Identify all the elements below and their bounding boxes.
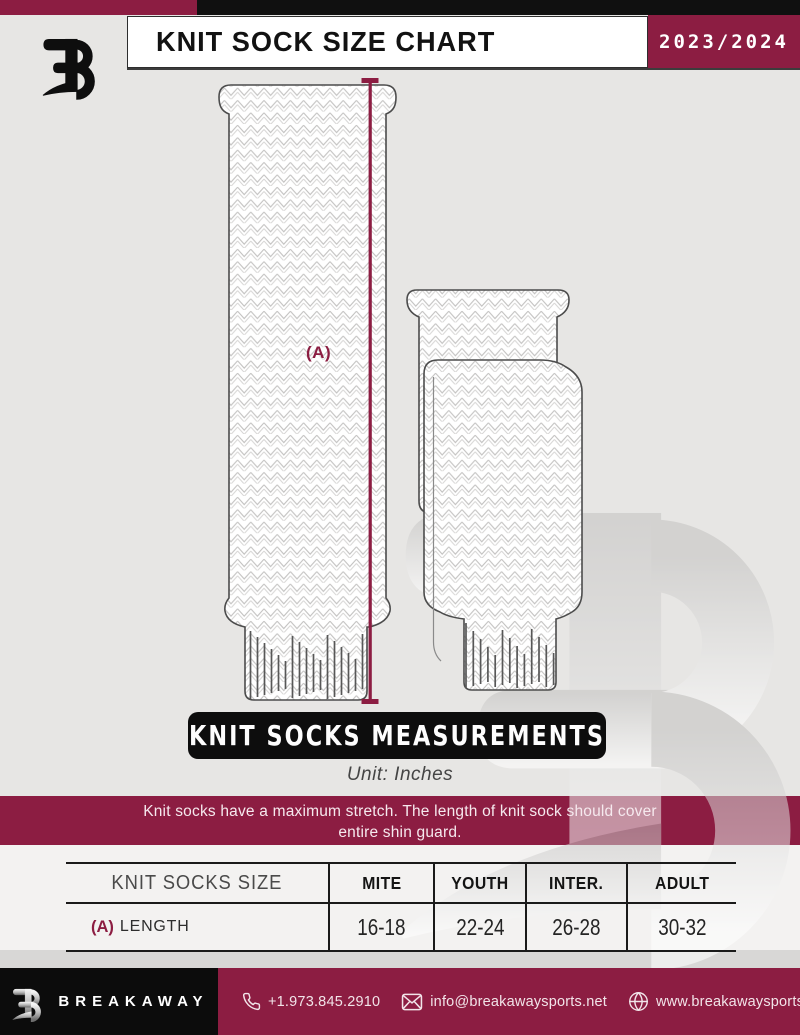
- footer-phone-number: +1.973.845.2910: [268, 994, 380, 1010]
- envelope-icon: [401, 993, 423, 1011]
- footer-breakaway-logo-icon: [9, 982, 47, 1022]
- stretch-notice-line2: entire shin guard.: [0, 822, 800, 843]
- page-title-box: KNIT SOCK SIZE CHART: [127, 16, 648, 68]
- bottom-gray-strip: [0, 950, 800, 968]
- footer-phone[interactable]: +1.973.845.2910: [242, 992, 380, 1011]
- footer-contacts: +1.973.845.2910 info@breakawaysports.net…: [218, 968, 800, 1035]
- header-underline: [127, 68, 800, 70]
- measurements-banner-text: KNIT SOCKS MEASUREMENTS: [189, 719, 605, 752]
- footer-brand-block: BREAKAWAY: [0, 968, 218, 1035]
- breakaway-logo-icon: [36, 26, 106, 100]
- footer-brand-name: BREAKAWAY: [58, 993, 208, 1010]
- table-header-adult: ADULT: [626, 864, 736, 904]
- footer: BREAKAWAY +1.973.845.2910 info@breakaway…: [0, 968, 800, 1035]
- season-label: 2023/2024: [659, 31, 789, 53]
- footer-website[interactable]: www.breakawaysports.net: [628, 991, 800, 1012]
- size-table: KNIT SOCKS SIZE MITE YOUTH INTER. ADULT …: [66, 862, 736, 952]
- large-sock: [219, 85, 396, 700]
- footer-email[interactable]: info@breakawaysports.net: [401, 993, 607, 1011]
- table-cell-youth: 22-24: [433, 904, 525, 950]
- table-header-mite: MITE: [328, 864, 433, 904]
- table-header-size: KNIT SOCKS SIZE: [66, 864, 328, 904]
- measurements-banner: KNIT SOCKS MEASUREMENTS: [188, 712, 606, 759]
- table-cell-mite: 16-18: [328, 904, 433, 950]
- season-box: 2023/2024: [648, 15, 800, 68]
- phone-icon: [242, 992, 261, 1011]
- footer-website-url: www.breakawaysports.net: [656, 994, 800, 1010]
- back-small-sock: [407, 290, 569, 513]
- measurement-line-a: [362, 78, 379, 704]
- table-cell-inter: 26-28: [525, 904, 626, 950]
- unit-label: Unit: Inches: [0, 764, 800, 786]
- table-row-label: (A) LENGTH: [66, 904, 328, 950]
- globe-icon: [628, 991, 649, 1012]
- table-cell-adult: 30-32: [626, 904, 736, 950]
- front-small-sock: [424, 360, 582, 690]
- footer-email-address: info@breakawaysports.net: [430, 994, 607, 1010]
- table-header-inter: INTER.: [525, 864, 626, 904]
- top-strip-maroon: [0, 0, 197, 15]
- measurement-label-a: (A): [306, 343, 331, 363]
- table-header-youth: YOUTH: [433, 864, 525, 904]
- stretch-notice-line1: Knit socks have a maximum stretch. The l…: [0, 801, 800, 822]
- stretch-notice: Knit socks have a maximum stretch. The l…: [0, 801, 800, 843]
- page-title: KNIT SOCK SIZE CHART: [156, 26, 495, 58]
- top-strip-black: [197, 0, 800, 15]
